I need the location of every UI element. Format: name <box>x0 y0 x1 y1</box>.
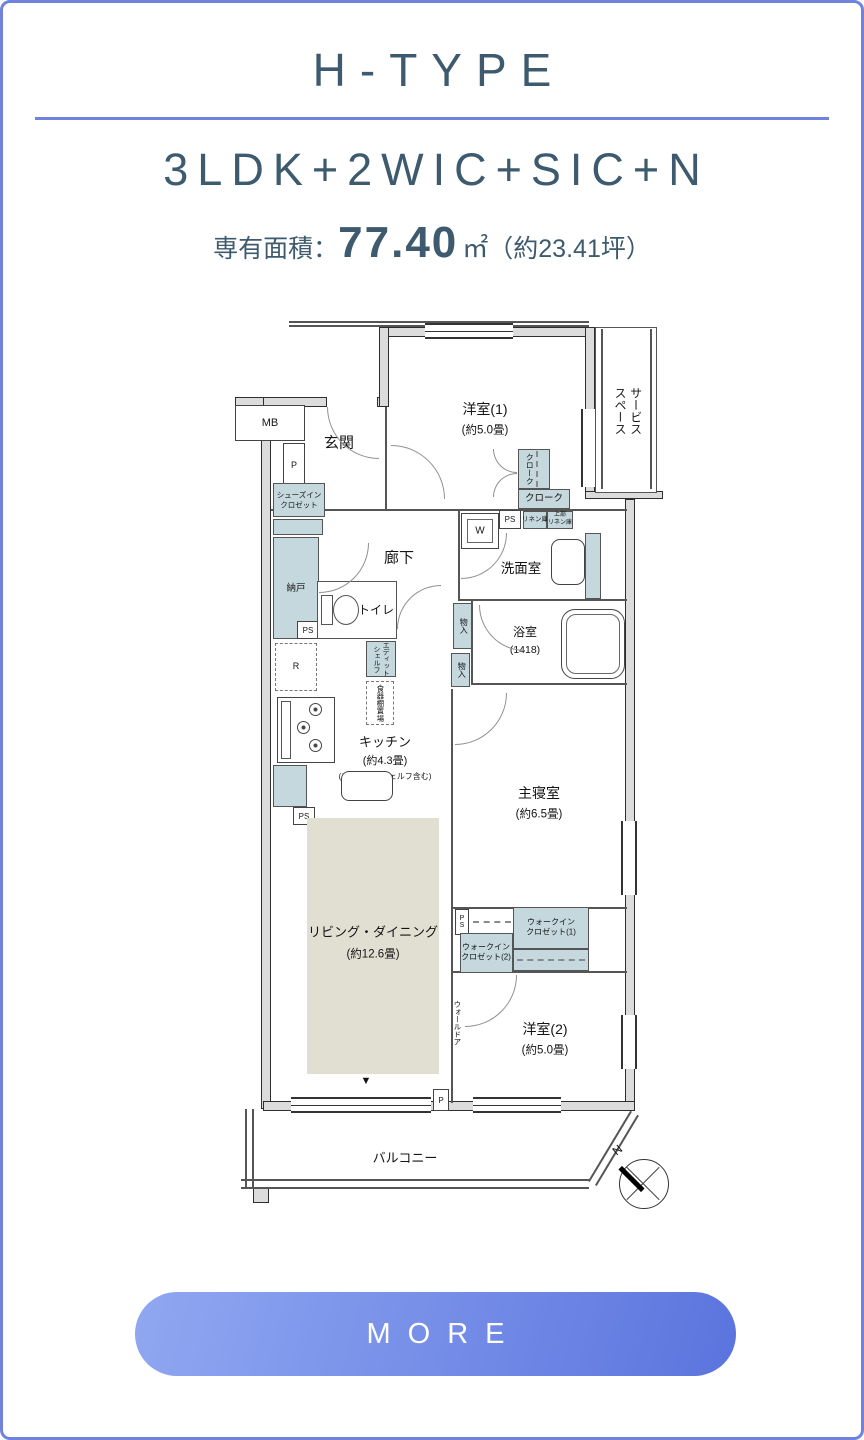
ps-label: P S <box>460 915 465 929</box>
balcony-railing <box>241 1179 589 1181</box>
layout-summary: 3LDK+2WIC+SIC+N <box>3 144 861 196</box>
monoire-2-label: 物入 <box>456 662 466 678</box>
master-label: 主寝室 <box>518 784 560 802</box>
yoshitsu2-label: 洋室(2) <box>522 1020 567 1038</box>
bathtub <box>561 609 625 679</box>
meter-box: MB <box>235 405 305 441</box>
service-line <box>601 329 603 489</box>
wic1-label: ウォークイン クロゼット(1) <box>526 918 576 939</box>
window-living-bottom <box>291 1097 431 1113</box>
partition <box>385 407 387 511</box>
mb-label: MB <box>262 417 279 429</box>
floorplan-diagram: サービス スペース MB P シューズイン クロゼット 納戸 PS 玄関 廊下 … <box>233 321 665 1226</box>
balcony-railing <box>241 1187 589 1189</box>
window-yoshitsu1-top <box>425 323 513 339</box>
monoire-1-label: 物入 <box>458 618 468 634</box>
area-summary: 専有面積： 77.40 ㎡ （約23.41坪） <box>3 218 861 268</box>
living-label: リビング・ダイニング <box>308 925 438 942</box>
rouka-label: 廊下 <box>384 548 414 568</box>
floorplan-card: H-TYPE 3LDK+2WIC+SIC+N 専有面積： 77.40 ㎡ （約2… <box>0 0 864 1440</box>
area-unit: ㎡ <box>462 228 488 265</box>
pipe-space: PS <box>297 621 319 639</box>
master-size: (約6.5畳) <box>516 808 563 823</box>
kitchen-counter-cabinet <box>273 765 307 807</box>
burner-icon <box>309 703 322 716</box>
pipe-space-p: P <box>433 1089 449 1111</box>
ps-label: PS <box>303 626 314 635</box>
area-value: 77.40 <box>338 218 458 268</box>
header: H-TYPE 3LDK+2WIC+SIC+N 専有面積： 77.40 ㎡ （約2… <box>3 43 861 268</box>
edit-shelf-label: エディット シェルフ <box>372 642 390 677</box>
window-yoshitsu2-bottom <box>473 1097 561 1113</box>
balcony-post <box>253 1187 269 1203</box>
wall-left <box>261 397 271 1109</box>
senmen-label: 洗面室 <box>501 560 542 578</box>
refrigerator-label: R <box>293 661 300 673</box>
closet-lower <box>273 519 323 535</box>
door-arc <box>391 445 445 499</box>
partition <box>471 683 627 685</box>
shoes-in-closet-label: シューズイン クロゼット <box>277 490 322 510</box>
vanity-sink <box>551 539 585 585</box>
living-dining-area <box>307 818 439 1074</box>
door-arc <box>479 605 525 651</box>
yoshitsu1-label: 洋室(1) <box>462 400 507 418</box>
wall-step <box>379 327 389 407</box>
toilet-bowl <box>333 595 359 625</box>
toilet-label: トイレ <box>358 603 394 619</box>
dish-shelf-label: 食器棚置場 <box>375 684 385 722</box>
upper-linen-label: 上部 リネン庫 <box>548 512 572 528</box>
yoshitsu1-size: (約5.0畳) <box>462 424 509 439</box>
service-line <box>650 329 652 489</box>
linen-label: リネン庫 <box>522 516 548 524</box>
window-yoshitsu2-right <box>621 1015 637 1069</box>
ps-label: PS <box>505 515 516 524</box>
hanger-line <box>536 451 538 487</box>
hanger-line <box>473 921 511 923</box>
yoshitsu2-size: (約5.0畳) <box>522 1044 569 1059</box>
living-size: (約12.6畳) <box>346 948 399 963</box>
burner-icon <box>297 721 310 734</box>
area-label: 専有面積： <box>213 229 338 265</box>
area-tsubo: （約23.41坪） <box>488 229 651 265</box>
wic2-label: ウォークイン クロゼット(2) <box>461 943 511 964</box>
hanger-line <box>517 959 585 961</box>
page-title: H-TYPE <box>3 43 861 97</box>
door-arc <box>465 975 517 1027</box>
kitchen-sink <box>341 771 393 801</box>
door-arc <box>493 473 517 497</box>
pipe-space: PS <box>499 510 521 529</box>
kitchen-label: キッチン <box>359 735 411 752</box>
pipe-space-p: P <box>283 443 305 487</box>
toilet-tank <box>321 595 333 625</box>
compass: N <box>611 1147 673 1209</box>
door-arc <box>493 449 517 473</box>
vanity-counter <box>585 533 601 599</box>
burner-icon <box>309 739 322 752</box>
p-label: P <box>291 460 297 470</box>
balcony-label: バルコニー <box>373 1151 438 1168</box>
balcony-railing <box>252 1109 254 1187</box>
balcony-railing <box>245 1109 247 1187</box>
service-space-label: サービス スペース <box>611 387 642 435</box>
door-arc <box>397 585 441 629</box>
partition <box>458 509 460 601</box>
pipe-space-vertical: P S <box>455 909 469 935</box>
p-label: P <box>438 1096 443 1105</box>
cloak-h-label: クローク <box>525 493 563 505</box>
stove-grill <box>281 701 291 759</box>
compass-north-label: N <box>610 1142 626 1158</box>
balcony-access-marker: ▼ <box>361 1074 372 1088</box>
kitchen-size: (約4.3畳) <box>363 754 408 768</box>
nando-label: 納戸 <box>286 583 305 595</box>
more-button[interactable]: MORE <box>135 1292 736 1376</box>
partition <box>458 599 627 601</box>
wall-door-label: ウォールドア <box>452 1001 462 1046</box>
title-divider <box>35 117 829 120</box>
window-master-right <box>621 821 637 895</box>
door-arc <box>455 693 507 745</box>
cloak-v-label: クローク <box>524 453 534 485</box>
